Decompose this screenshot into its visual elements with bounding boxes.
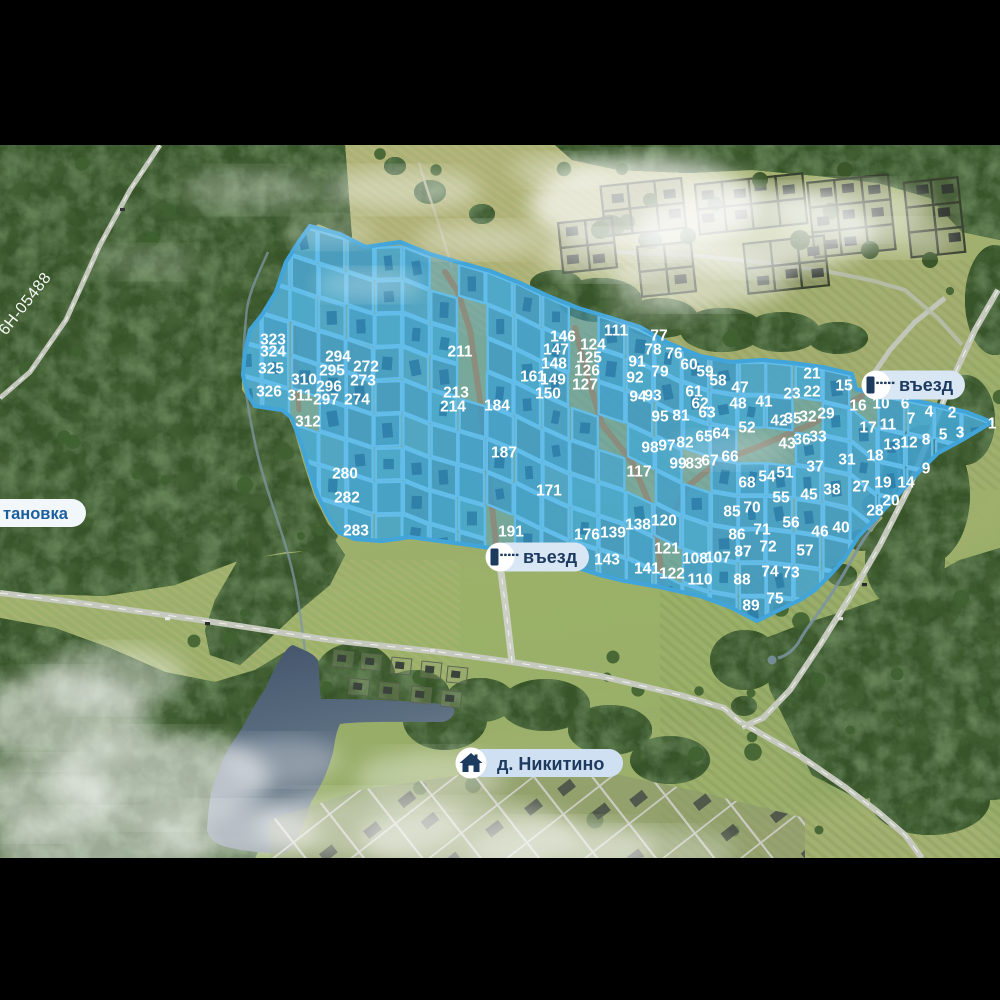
svg-text:20: 20 (882, 493, 899, 510)
svg-text:27: 27 (852, 479, 869, 496)
svg-text:3: 3 (956, 425, 965, 442)
svg-text:71: 71 (753, 522, 771, 539)
svg-text:74: 74 (761, 564, 779, 581)
svg-text:60: 60 (680, 357, 697, 374)
svg-text:184: 184 (484, 398, 510, 415)
svg-text:19: 19 (874, 475, 892, 492)
svg-text:12: 12 (900, 435, 917, 452)
svg-text:55: 55 (772, 490, 790, 507)
svg-text:311: 311 (287, 388, 312, 405)
svg-text:51: 51 (776, 465, 794, 482)
svg-text:56: 56 (782, 515, 800, 532)
svg-text:121: 121 (654, 541, 680, 558)
svg-text:36: 36 (793, 432, 811, 449)
svg-text:79: 79 (651, 364, 669, 381)
svg-text:171: 171 (536, 483, 562, 500)
svg-text:86: 86 (728, 527, 746, 544)
svg-text:40: 40 (832, 520, 849, 537)
svg-text:89: 89 (742, 598, 760, 615)
svg-text:33: 33 (809, 429, 827, 446)
svg-text:31: 31 (838, 452, 856, 469)
svg-text:73: 73 (782, 565, 800, 582)
svg-text:37: 37 (806, 459, 823, 476)
svg-text:139: 139 (600, 525, 626, 542)
svg-text:214: 214 (440, 399, 466, 416)
svg-text:58: 58 (709, 373, 727, 390)
svg-text:191: 191 (498, 524, 524, 541)
svg-text:70: 70 (743, 500, 760, 517)
svg-text:95: 95 (651, 409, 669, 426)
svg-text:46: 46 (811, 524, 829, 541)
svg-text:282: 282 (334, 490, 360, 507)
svg-text:48: 48 (729, 396, 747, 413)
svg-text:9: 9 (922, 461, 931, 478)
svg-text:273: 273 (350, 373, 376, 390)
svg-text:88: 88 (733, 572, 751, 589)
svg-text:32: 32 (799, 409, 816, 426)
svg-text:16: 16 (849, 398, 867, 415)
svg-text:8: 8 (922, 432, 931, 449)
svg-text:63: 63 (698, 405, 716, 422)
svg-text:13: 13 (883, 437, 901, 454)
svg-text:4: 4 (925, 404, 934, 421)
svg-text:211: 211 (447, 344, 472, 361)
svg-text:въезд: въезд (523, 547, 578, 567)
svg-text:1: 1 (988, 416, 997, 433)
svg-text:47: 47 (731, 380, 748, 397)
svg-text:91: 91 (628, 354, 646, 371)
svg-text:97: 97 (658, 438, 675, 455)
svg-text:141: 141 (634, 561, 660, 578)
svg-text:143: 143 (594, 552, 620, 569)
svg-text:45: 45 (800, 487, 818, 504)
svg-text:7: 7 (907, 411, 916, 428)
svg-text:75: 75 (766, 591, 784, 608)
svg-text:150: 150 (535, 386, 561, 403)
svg-text:85: 85 (723, 504, 741, 521)
svg-text:78: 78 (644, 342, 662, 359)
svg-text:107: 107 (705, 550, 731, 567)
svg-text:тановка: тановка (3, 505, 69, 523)
svg-text:87: 87 (734, 544, 751, 561)
svg-text:297: 297 (313, 392, 339, 409)
svg-text:283: 283 (343, 523, 369, 540)
svg-text:326: 326 (256, 384, 282, 401)
svg-text:92: 92 (626, 370, 643, 387)
svg-text:29: 29 (817, 406, 835, 423)
svg-text:312: 312 (295, 414, 321, 431)
svg-text:5: 5 (939, 427, 948, 444)
svg-text:138: 138 (625, 517, 651, 534)
svg-text:17: 17 (859, 420, 876, 437)
svg-text:21: 21 (803, 366, 821, 383)
svg-text:38: 38 (823, 482, 841, 499)
svg-text:54: 54 (758, 469, 776, 486)
svg-text:176: 176 (574, 527, 600, 544)
svg-text:280: 280 (332, 466, 358, 483)
svg-text:въезд: въезд (899, 375, 954, 395)
svg-text:22: 22 (803, 384, 820, 401)
svg-text:274: 274 (344, 392, 370, 409)
svg-text:111: 111 (604, 323, 629, 340)
svg-text:120: 120 (651, 513, 677, 530)
svg-text:310: 310 (291, 372, 317, 389)
svg-text:295: 295 (319, 363, 345, 380)
svg-text:23: 23 (783, 386, 801, 403)
svg-text:2: 2 (948, 405, 957, 422)
svg-text:127: 127 (572, 377, 598, 394)
svg-text:122: 122 (659, 566, 685, 583)
svg-text:110: 110 (687, 572, 712, 589)
svg-text:98: 98 (641, 440, 659, 457)
svg-text:д. Никитино: д. Никитино (497, 754, 604, 774)
svg-text:14: 14 (897, 475, 915, 492)
svg-text:93: 93 (644, 388, 662, 405)
svg-text:57: 57 (796, 543, 813, 560)
svg-text:324: 324 (260, 344, 286, 361)
svg-text:325: 325 (258, 361, 284, 378)
svg-text:11: 11 (880, 417, 897, 434)
svg-text:72: 72 (759, 539, 776, 556)
svg-text:68: 68 (738, 475, 756, 492)
svg-text:18: 18 (866, 448, 884, 465)
svg-text:117: 117 (626, 464, 651, 481)
svg-text:28: 28 (866, 503, 884, 520)
svg-text:187: 187 (491, 445, 517, 462)
svg-text:15: 15 (835, 378, 853, 395)
svg-text:41: 41 (755, 394, 773, 411)
svg-text:81: 81 (672, 408, 690, 425)
